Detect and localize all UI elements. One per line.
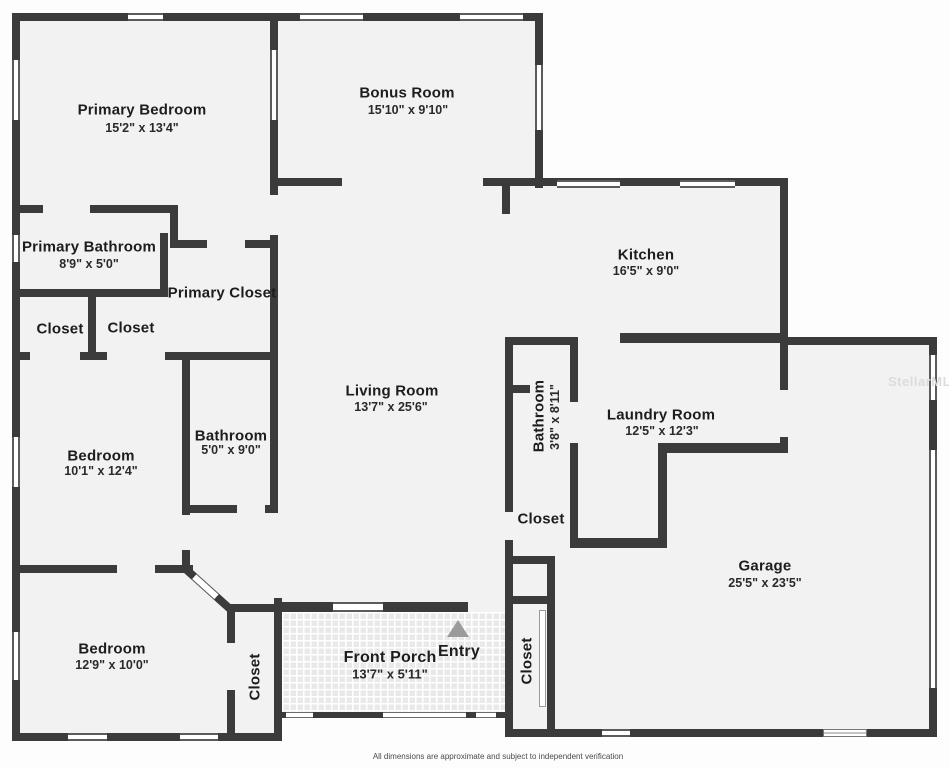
floor-area [788,337,937,737]
wall-segment [780,180,788,345]
room-label-bedroom-2: Bedroom [78,641,145,658]
window-symbol [270,50,278,120]
wall-segment [513,385,530,393]
wall-segment [658,443,788,453]
window-symbol [12,437,20,487]
wall-segment [12,352,30,360]
room-label-bedroom-closet: Closet [247,653,264,700]
window-symbol [12,632,20,680]
wall-segment [270,352,278,512]
wall-segment [165,352,182,360]
wall-segment [658,443,667,548]
wall-segment [182,352,278,360]
wall-segment [505,337,578,345]
room-label-closet-2: Closet [107,320,154,337]
wall-segment [12,733,282,741]
wall-segment [88,297,96,360]
wall-segment [780,437,788,453]
wall-segment [90,205,178,213]
wall-segment [182,550,190,565]
window-symbol [557,180,620,188]
room-dims-bathroom-2: 5'0" x 9'0" [201,443,261,457]
wall-segment [245,240,278,248]
wall-segment [80,352,107,360]
garage-door-symbol [823,729,867,737]
wall-segment [505,540,513,737]
window-symbol [68,733,107,741]
window-symbol [602,729,630,737]
floor-area [12,612,282,741]
wall-segment [12,565,117,573]
wall-segment [227,604,235,643]
window-symbol [929,450,937,688]
wall-segment [483,178,788,186]
wall-segment [780,337,937,345]
room-label-hall-closet: Closet [517,511,564,528]
wall-segment [170,240,207,248]
room-label-bonus-room: Bonus Room [359,85,454,102]
window-symbol [535,65,543,130]
wall-segment [502,186,510,214]
room-dims-garage: 25'5" x 23'5" [728,576,801,590]
wall-segment [620,333,788,343]
window-symbol [460,13,523,21]
wall-segment [505,729,937,737]
porch-rail-symbol [476,712,496,718]
wall-segment [270,13,278,50]
room-dims-primary-bedroom: 15'2" x 13'4" [105,121,178,135]
room-label-closet-1: Closet [36,321,83,338]
wall-segment [12,289,168,297]
wall-segment [277,178,342,186]
room-label-bedroom-1: Bedroom [67,448,134,465]
room-label-interior-bathroom: Bathroom [531,380,548,452]
room-label-kitchen: Kitchen [618,247,674,264]
room-dims-bonus-room: 15'10" x 9'10" [368,103,448,117]
window-symbol [128,13,163,21]
room-dims-interior-bathroom: 3'8" x 8'11" [548,384,562,450]
wall-segment [270,120,278,195]
room-label-primary-bathroom: Primary Bathroom [22,239,156,256]
porch-rail-symbol [383,712,466,718]
wall-segment [570,538,667,548]
room-label-entry-closet: Closet [519,637,536,684]
entry-arrow-icon [447,620,469,637]
wall-segment [505,337,513,512]
room-dims-living-room: 13'7" x 25'6" [354,400,427,414]
room-label-primary-bedroom: Primary Bedroom [78,102,207,119]
wall-segment [227,690,235,741]
wall-segment [182,352,190,515]
room-dims-laundry-room: 12'5" x 12'3" [625,424,698,438]
watermark: StellarMLS [888,374,949,389]
floor-plan: Primary Bedroom 15'2" x 13'4" Bonus Room… [0,0,949,768]
room-label-front-porch: Front Porch [344,649,437,667]
room-dims-kitchen: 16'5" x 9'0" [613,264,679,278]
porch-rail-symbol [286,712,313,718]
window-symbol [12,60,20,120]
wall-segment [547,564,555,737]
wall-segment [12,205,43,213]
room-label-living-room: Living Room [345,383,438,400]
room-label-primary-closet: Primary Closet [168,285,277,302]
window-symbol [680,180,735,188]
wall-segment [182,505,237,513]
wall-segment [570,443,578,548]
room-dims-primary-bathroom: 8'9" x 5'0" [59,257,119,271]
window-symbol [333,602,383,612]
room-dims-bedroom-1: 10'1" x 12'4" [64,464,137,478]
wall-segment [265,505,278,513]
window-symbol [180,733,218,741]
window-symbol [300,13,363,21]
room-dims-bedroom-2: 12'9" x 10'0" [75,658,148,672]
wall-segment [505,556,555,564]
room-label-entry: Entry [438,643,480,661]
room-dims-front-porch: 13'7" x 5'11" [352,667,428,682]
disclaimer-text: All dimensions are approximate and subje… [298,752,698,761]
room-label-laundry-room: Laundry Room [607,407,715,424]
wall-segment [505,596,547,604]
room-label-garage: Garage [739,558,792,575]
closet-door-symbol [539,610,546,707]
wall-segment [780,345,788,390]
room-label-bathroom-2: Bathroom [195,428,267,445]
wall-segment [570,337,578,402]
window-symbol [12,235,20,262]
wall-segment [274,598,282,741]
